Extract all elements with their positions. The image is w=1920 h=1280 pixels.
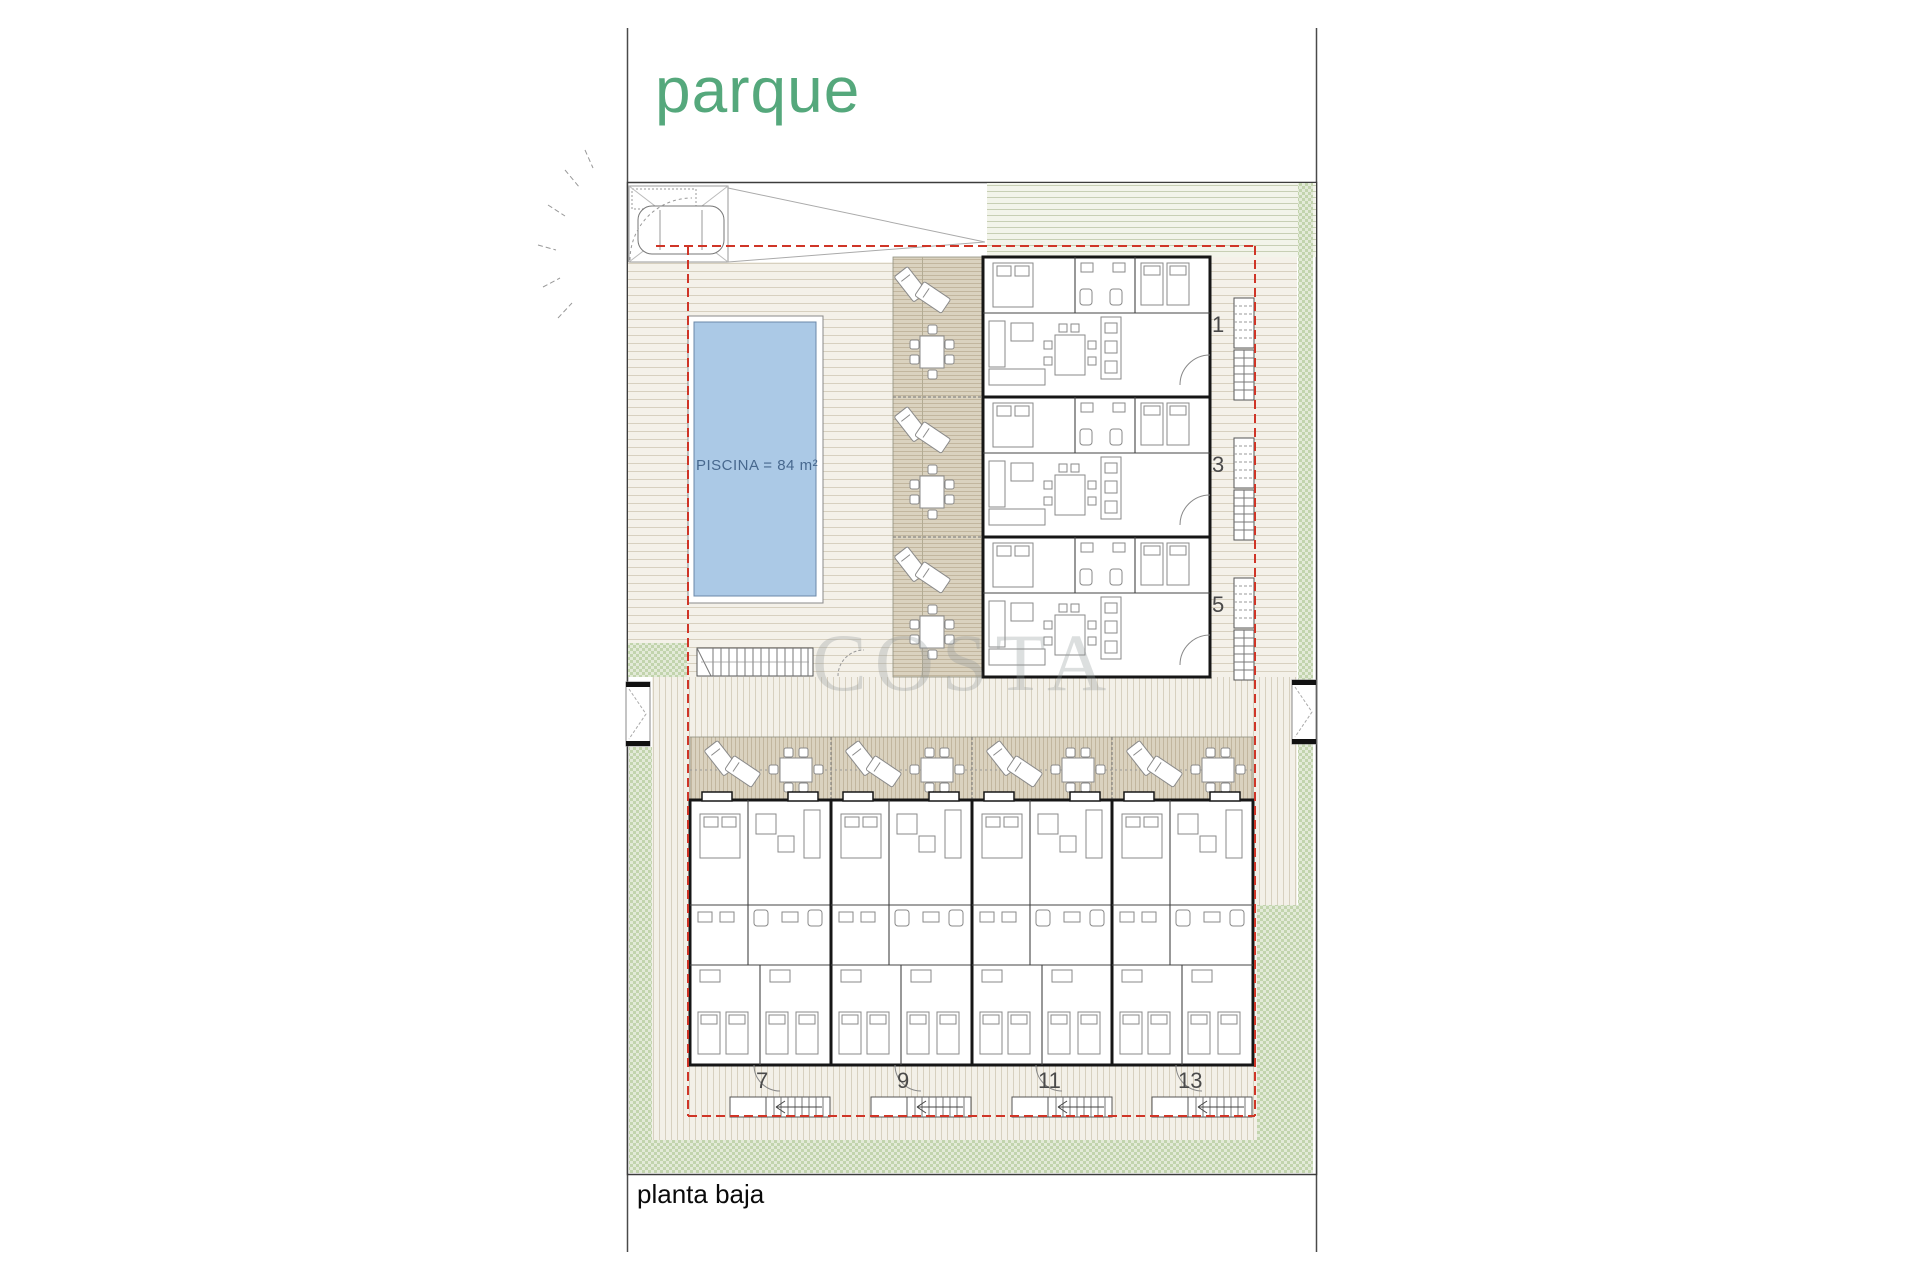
- unit-number: 5: [1212, 592, 1224, 617]
- stairs-unit-11: [1012, 1097, 1112, 1117]
- upper-unit-1: [983, 257, 1210, 397]
- pool: PISCINA = 84 m²: [688, 316, 823, 603]
- lower-unit-11: [972, 792, 1113, 1091]
- lower-terraces: [690, 737, 1253, 800]
- grass-strip-left: [629, 747, 652, 1173]
- unit-number: 9: [897, 1068, 909, 1093]
- unit-number: 3: [1212, 452, 1224, 477]
- floor-label: planta baja: [637, 1179, 765, 1209]
- stairs-unit-9: [871, 1097, 971, 1117]
- lower-unit-9: [831, 792, 972, 1091]
- unit-number: 1: [1212, 312, 1224, 337]
- gate-right: [1292, 680, 1316, 744]
- unit-number: 13: [1178, 1068, 1202, 1093]
- pool-area-label: PISCINA = 84 m²: [696, 457, 818, 474]
- stairs-unit-13: [1152, 1097, 1252, 1117]
- lower-unit-13: [1112, 792, 1253, 1091]
- grass-strip-bottom: [629, 1140, 1313, 1173]
- grass-patch-left: [628, 643, 687, 677]
- gate-left: [626, 682, 650, 746]
- plan-sheet: parque PISCINA = 84 m²: [0, 0, 1920, 1280]
- stairs-unit-7: [730, 1097, 830, 1117]
- unit-number: 11: [1038, 1068, 1061, 1093]
- upper-terraces: [893, 257, 983, 677]
- park-label: parque: [655, 54, 860, 126]
- car-icon: [638, 206, 724, 254]
- pool-deck-stairs: [697, 648, 813, 676]
- watermark-text: COSTA: [812, 617, 1114, 708]
- upper-unit-3: [983, 397, 1210, 537]
- lower-unit-7: [690, 792, 831, 1091]
- sightline-fan-dashes: [538, 150, 593, 318]
- grass-corner-right: [1257, 905, 1313, 1173]
- unit-number: 7: [756, 1068, 768, 1093]
- floorplan-drawing: parque PISCINA = 84 m²: [0, 0, 1920, 1280]
